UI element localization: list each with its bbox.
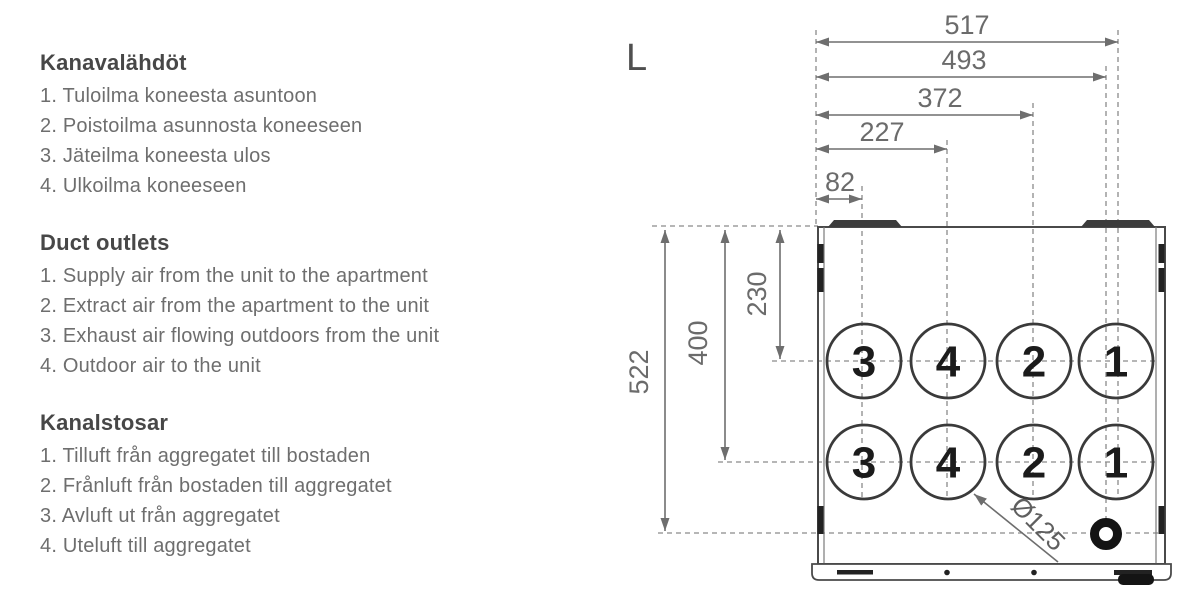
outlet-number: 1: [1104, 337, 1128, 386]
outlet-number: 3: [852, 438, 876, 487]
section-heading-finnish: Kanavalähdöt: [40, 48, 560, 78]
dim-height-230: 230: [742, 271, 772, 316]
condensate-connection-ring: [1095, 523, 1118, 546]
list-item: 2. Poistoilma asunnosta koneeseen: [40, 111, 560, 141]
dim-width-372: 372: [917, 83, 962, 113]
section-english: Duct outlets 1. Supply air from the unit…: [40, 228, 560, 381]
outlet-number: 4: [936, 337, 961, 386]
dim-width-517: 517: [944, 10, 989, 40]
bottom-right-foot: [1118, 574, 1154, 585]
side-edge-fittings: [818, 244, 1165, 534]
section-swedish: Kanalstosar 1. Tilluft från aggregatet t…: [40, 408, 560, 561]
dim-height-400: 400: [683, 320, 713, 365]
diameter-callout: Ø125: [974, 491, 1071, 562]
list-item: 3. Avluft ut från aggregatet: [40, 501, 560, 531]
list-item: 1. Tuloilma koneesta asuntoon: [40, 81, 560, 111]
dim-width-82: 82: [825, 167, 855, 197]
dashed-reference-lines: [652, 30, 1158, 534]
list-item: 3. Exhaust air flowing outdoors from the…: [40, 321, 560, 351]
outlet-number: 1: [1104, 438, 1128, 487]
dim-height-522: 522: [624, 349, 654, 394]
top-flange-left: [828, 220, 902, 227]
top-flange-right: [1081, 220, 1155, 227]
duct-outlets-figure: Kanavalähdöt 1. Tuloilma koneesta asunto…: [0, 0, 1200, 608]
list-item: 3. Jäteilma koneesta ulos: [40, 141, 560, 171]
view-label-L: L: [626, 37, 647, 79]
list-item: 4. Outdoor air to the unit: [40, 351, 560, 381]
section-heading-swedish: Kanalstosar: [40, 408, 560, 438]
outlet-number: 3: [852, 337, 876, 386]
dim-width-227: 227: [859, 117, 904, 147]
outlet-number: 4: [936, 438, 961, 487]
legend-list-swedish: 1. Tilluft från aggregatet till bostaden…: [40, 441, 560, 561]
list-item: 1. Supply air from the unit to the apart…: [40, 261, 560, 291]
outlet-number: 2: [1022, 438, 1046, 487]
technical-drawing: L 517 493: [600, 0, 1200, 608]
list-item: 2. Extract air from the apartment to the…: [40, 291, 560, 321]
section-heading-english: Duct outlets: [40, 228, 560, 258]
outlet-number: 2: [1022, 337, 1046, 386]
dim-width-493: 493: [941, 45, 986, 75]
list-item: 4. Uteluft till aggregatet: [40, 531, 560, 561]
legend-list-finnish: 1. Tuloilma koneesta asuntoon 2. Poistoi…: [40, 81, 560, 201]
legend-text-column: Kanavalähdöt 1. Tuloilma koneesta asunto…: [40, 48, 560, 588]
list-item: 4. Ulkoilma koneeseen: [40, 171, 560, 201]
legend-list-english: 1. Supply air from the unit to the apart…: [40, 261, 560, 381]
section-finnish: Kanavalähdöt 1. Tuloilma koneesta asunto…: [40, 48, 560, 201]
list-item: 1. Tilluft från aggregatet till bostaden: [40, 441, 560, 471]
drawing-svg: L 517 493: [600, 0, 1200, 608]
list-item: 2. Frånluft från bostaden till aggregate…: [40, 471, 560, 501]
